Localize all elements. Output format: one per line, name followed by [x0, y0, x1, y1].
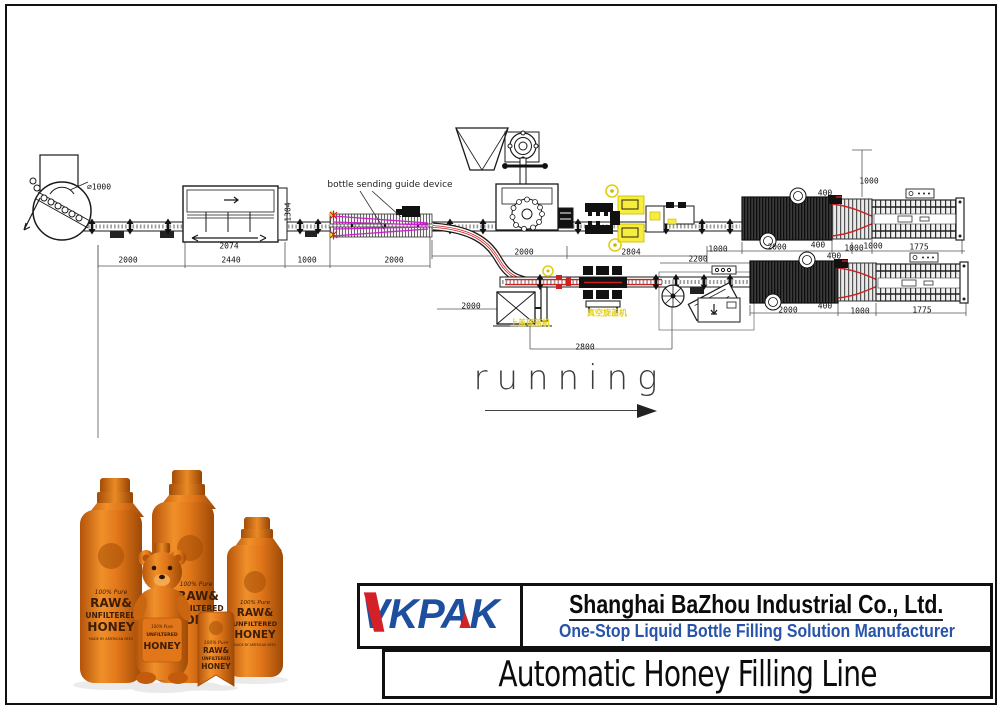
dimension-label: 1775 [909, 243, 928, 252]
svg-text:HONEY: HONEY [201, 662, 231, 671]
dimension-label: 2000 [514, 248, 533, 257]
svg-text:UNFILTERED: UNFILTERED [85, 611, 136, 620]
svg-text:RAW&: RAW& [90, 596, 132, 610]
company-cell: Shanghai BaZhou Industrial Co., Ltd. One… [523, 586, 990, 646]
running-label: running [455, 358, 685, 398]
dimension-label: 1775 [912, 306, 931, 315]
vkpak-logo: VKPAK [360, 586, 510, 638]
svg-text:UNFILTERED: UNFILTERED [146, 632, 178, 638]
accumulation-table-line-2 [750, 252, 880, 310]
dimension-label: 2800 [575, 343, 594, 352]
dimension-label: 2000 [778, 306, 797, 315]
filling-machine [585, 185, 694, 251]
dimension-label: 400 [818, 302, 832, 311]
dimension-label: 1000 [850, 307, 869, 316]
branding-table-bottom-row: Automatic Honey Filling Line [382, 649, 993, 699]
svg-text:100% Pure: 100% Pure [240, 600, 271, 606]
svg-text:HONEY: HONEY [234, 629, 276, 641]
svg-text:RAW&: RAW& [237, 607, 273, 619]
honey-bottle-large-left: 100% Pure RAW& UNFILTERED HONEY MADE BY … [80, 478, 144, 683]
logo-cell: VKPAK [360, 586, 523, 646]
dimension-label: 400 [818, 189, 832, 198]
dimension-label: 1000 [859, 177, 878, 186]
cap-hopper-and-head [456, 128, 548, 184]
product-line-title: Automatic Honey Filling Line [498, 654, 876, 695]
svg-text:100% Pure: 100% Pure [95, 589, 128, 596]
svg-text:HONEY: HONEY [143, 641, 180, 652]
company-tagline: One-Stop Liquid Bottle Filling Solution … [559, 622, 955, 641]
dimension-label: 400 [827, 252, 841, 261]
dimension-label: 1000 [844, 244, 863, 253]
roller-conveyor-line-2 [876, 253, 968, 303]
company-name: Shanghai BaZhou Industrial Co., Ltd. [569, 590, 943, 621]
svg-text:100% Pure: 100% Pure [151, 624, 173, 629]
svg-text:MADE BY AMERICAN BEES: MADE BY AMERICAN BEES [234, 643, 276, 647]
vacuum-capping-machine [579, 266, 627, 313]
cap-feeder-label: 上盖理盖机 [510, 318, 550, 329]
page: ⌀1000 bottle sending guide device 上盖理盖机 … [0, 0, 1000, 715]
roller-conveyor-line-1 [872, 189, 964, 240]
svg-text:UNFILTERED: UNFILTERED [202, 656, 231, 661]
dimension-label: 400 [811, 241, 825, 250]
svg-text:RAW&: RAW& [203, 646, 230, 655]
dimension-label: 2200 [688, 255, 707, 264]
svg-text:HONEY: HONEY [87, 620, 134, 634]
svg-text:MADE BY AMERICAN BEES: MADE BY AMERICAN BEES [89, 637, 133, 641]
dimension-label: 2000 [767, 243, 786, 252]
svg-text:UNFILTERED: UNFILTERED [233, 620, 278, 628]
dimension-label: 1000 [708, 245, 727, 254]
accumulation-table-line-1 [742, 188, 874, 249]
honey-bottles-photo: 100% Pure RAW& UNFILTERED HONEY MADE BY … [0, 0, 360, 715]
vacuum-capper-label: 真空旋盖机 [587, 308, 627, 319]
running-annotation: running [455, 358, 685, 418]
running-direction-arrow [455, 404, 685, 418]
dimension-label: 1000 [863, 242, 882, 251]
dimension-label: 2000 [384, 256, 403, 265]
dimension-label: 2000 [461, 302, 480, 311]
honey-bottle-medium-right: 100% Pure RAW& UNFILTERED HONEY MADE BY … [227, 517, 283, 677]
dimension-label: 2804 [621, 248, 640, 257]
honey-packet: 100% Pure RAW& UNFILTERED HONEY [198, 612, 234, 686]
svg-text:100% Pure: 100% Pure [180, 581, 213, 588]
capping-machine [496, 184, 573, 231]
branding-table-top-row: VKPAK Shanghai BaZhou Industrial Co., Lt… [357, 583, 993, 649]
